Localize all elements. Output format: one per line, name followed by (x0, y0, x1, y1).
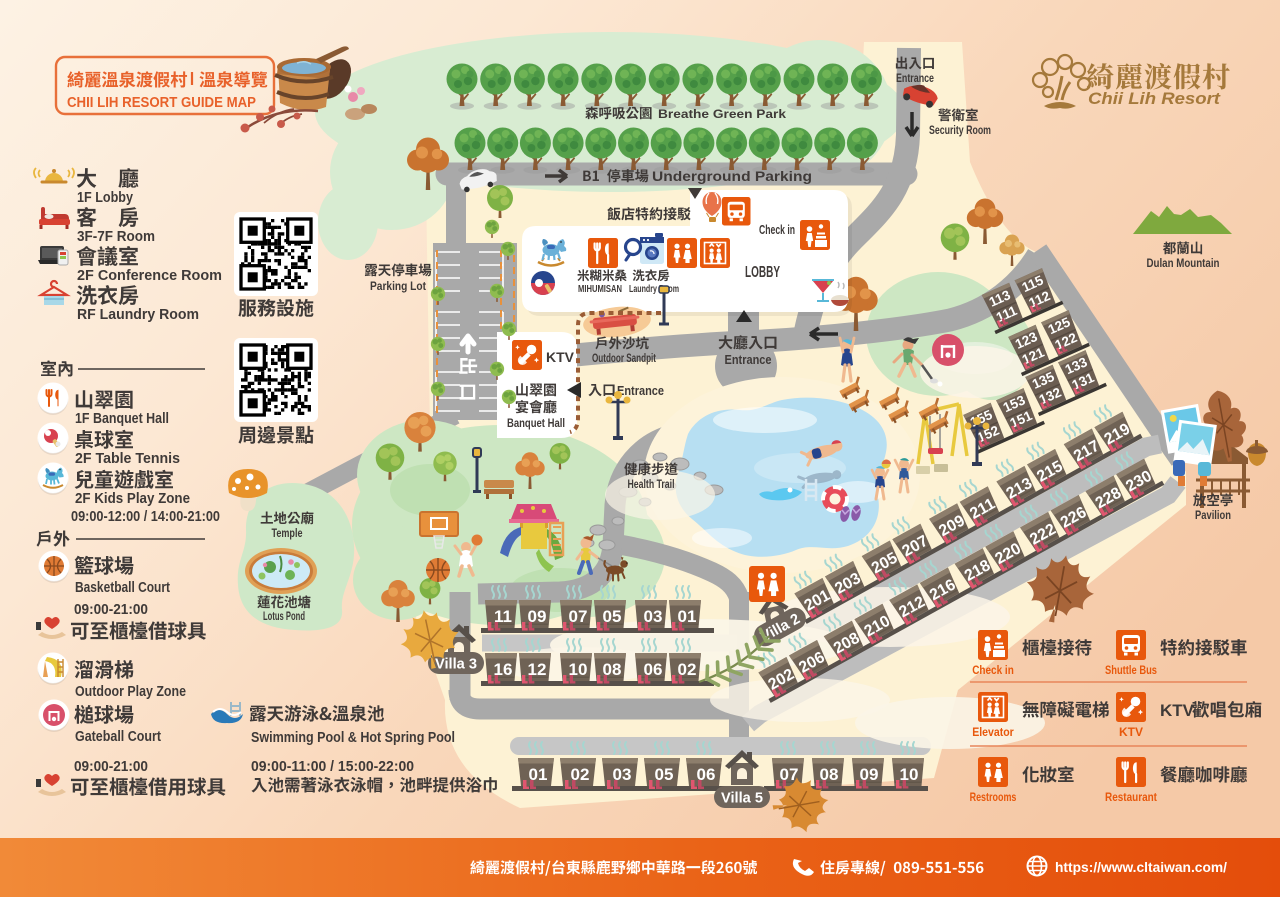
svg-text:1F Banquet Hall: 1F Banquet Hall (75, 411, 169, 427)
svg-text:09:00-21:00: 09:00-21:00 (74, 601, 148, 618)
svg-text:https://www.cltaiwan.com/: https://www.cltaiwan.com/ (1055, 859, 1227, 875)
svg-text:Laundry Room: Laundry Room (629, 284, 679, 295)
svg-text:Health Trail: Health Trail (628, 477, 675, 491)
svg-text:Check in: Check in (759, 223, 795, 237)
svg-text:Check in: Check in (972, 663, 1014, 677)
svg-text:1F Lobby: 1F Lobby (77, 190, 133, 206)
svg-text:10: 10 (569, 660, 588, 679)
svg-text:09: 09 (860, 765, 879, 784)
svg-text:Entrance: Entrance (725, 352, 772, 367)
svg-text:KTV: KTV (1160, 701, 1195, 720)
svg-text:12: 12 (528, 660, 547, 679)
svg-text:08: 08 (603, 660, 622, 679)
svg-text:09:00-11:00 / 15:00-22:00: 09:00-11:00 / 15:00-22:00 (251, 758, 414, 775)
svg-text:2F Kids Play Zone: 2F Kids Play Zone (75, 491, 190, 507)
svg-text:02: 02 (571, 765, 590, 784)
svg-text:16: 16 (494, 660, 513, 679)
svg-text:MIHUMISAN: MIHUMISAN (578, 284, 622, 295)
svg-text:05: 05 (603, 607, 622, 626)
svg-text:Basketball Court: Basketball Court (75, 580, 170, 596)
svg-text:Lotus Pond: Lotus Pond (263, 611, 305, 623)
svg-text:10: 10 (900, 765, 919, 784)
svg-text:Parking Lot: Parking Lot (370, 279, 426, 293)
svg-text:09:00-21:00: 09:00-21:00 (74, 758, 148, 775)
svg-text:Entrance: Entrance (617, 383, 664, 398)
svg-text:05: 05 (655, 765, 674, 784)
svg-text:Restrooms: Restrooms (970, 790, 1017, 804)
svg-text:07: 07 (569, 607, 588, 626)
svg-text:01: 01 (678, 607, 697, 626)
svg-text:06: 06 (697, 765, 716, 784)
svg-text:Pavilion: Pavilion (1195, 510, 1231, 522)
svg-text:Banquet Hall: Banquet Hall (507, 416, 565, 430)
svg-text:02: 02 (678, 660, 697, 679)
svg-text:3F-7F Room: 3F-7F Room (77, 229, 155, 245)
svg-text:CHII LIH RESORT GUIDE MAP: CHII LIH RESORT GUIDE MAP (67, 95, 256, 111)
svg-text:Elevator: Elevator (972, 725, 1014, 739)
svg-text:Security Room: Security Room (929, 123, 991, 137)
svg-text:09: 09 (528, 607, 547, 626)
svg-text:Outdoor Play Zone: Outdoor Play Zone (75, 684, 186, 700)
svg-text:Shuttle Bus: Shuttle Bus (1105, 663, 1157, 677)
svg-text:Villa 5: Villa 5 (721, 790, 763, 807)
svg-text:2F Conference Room: 2F Conference Room (77, 268, 222, 284)
svg-text:RF Laundry Room: RF Laundry Room (77, 307, 199, 323)
svg-text:Dulan Mountain: Dulan Mountain (1147, 258, 1220, 270)
svg-text:Villa 3: Villa 3 (435, 656, 477, 673)
svg-text:01: 01 (529, 765, 548, 784)
svg-text:KTV: KTV (1119, 725, 1143, 739)
svg-text:Chii Lih Resort: Chii Lih Resort (1088, 89, 1221, 108)
svg-text:03: 03 (644, 607, 663, 626)
svg-text:Entrance: Entrance (896, 71, 934, 85)
svg-text:08: 08 (820, 765, 839, 784)
svg-text:KTV: KTV (546, 349, 575, 365)
svg-text:Breathe Green Park: Breathe Green Park (658, 107, 786, 121)
svg-text:2F Table Tennis: 2F Table Tennis (75, 451, 180, 467)
svg-text:Gateball Court: Gateball Court (75, 729, 161, 745)
svg-text:Temple: Temple (272, 528, 303, 540)
svg-text:Outdoor Sandpit: Outdoor Sandpit (592, 353, 656, 365)
svg-text:11: 11 (494, 607, 512, 626)
svg-text:Underground Parking: Underground Parking (652, 169, 812, 184)
svg-text:LOBBY: LOBBY (745, 264, 780, 281)
svg-text:Restaurant: Restaurant (1105, 790, 1157, 804)
svg-text:09:00-12:00 / 14:00-21:00: 09:00-12:00 / 14:00-21:00 (71, 508, 220, 525)
svg-text:03: 03 (613, 765, 632, 784)
svg-text:06: 06 (644, 660, 663, 679)
svg-text:Swimming Pool & Hot Spring Poo: Swimming Pool & Hot Spring Pool (251, 729, 455, 746)
